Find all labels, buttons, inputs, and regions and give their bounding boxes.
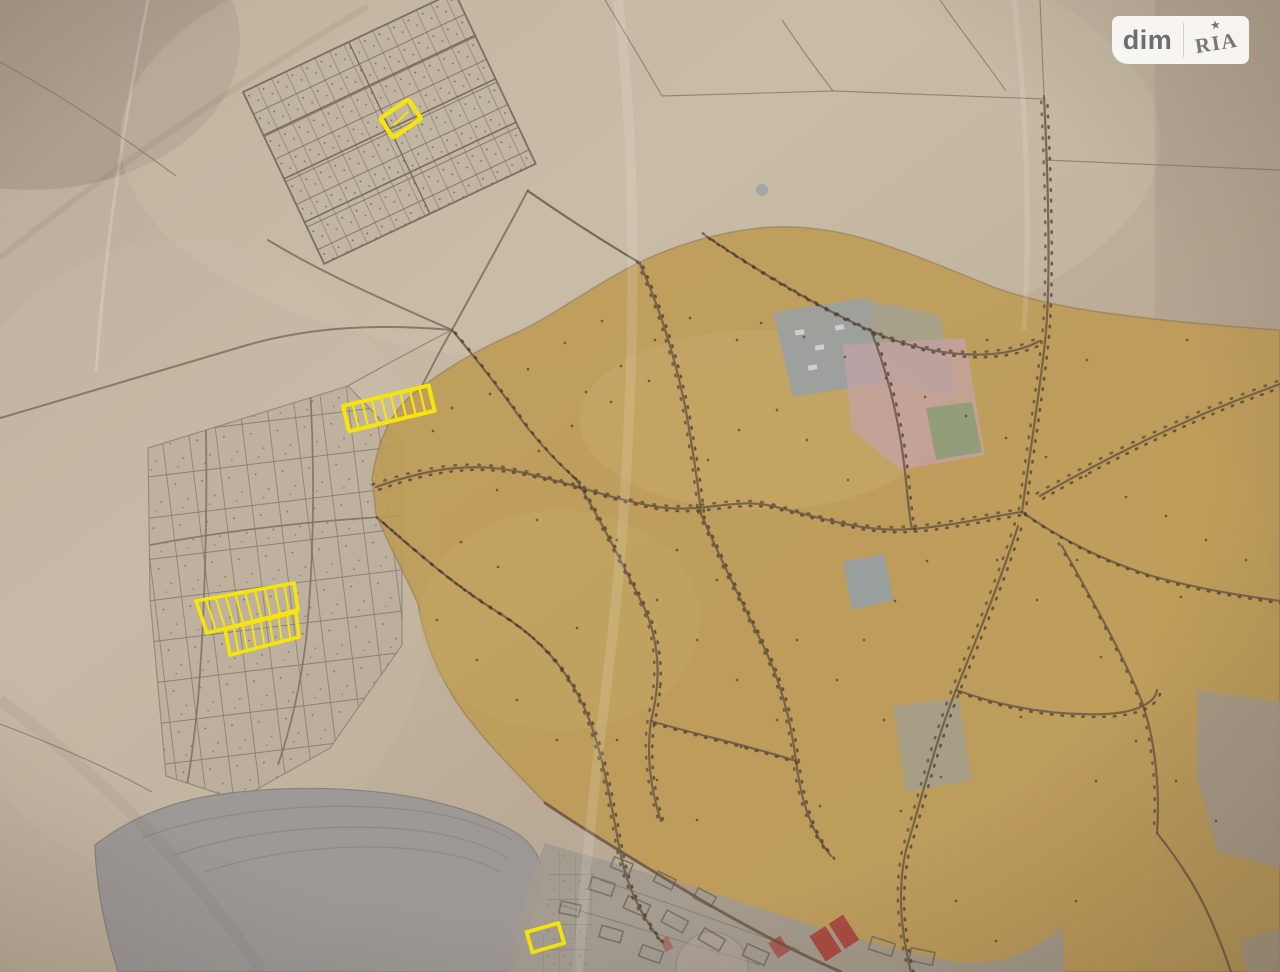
ria-logo-text: RIA xyxy=(1194,28,1240,59)
dimria-watermark: dim ★ RIA xyxy=(1112,16,1249,64)
dim-logo-text: dim xyxy=(1112,25,1183,56)
photo-vignette xyxy=(0,0,1280,972)
cadastral-map-photo xyxy=(0,0,1280,972)
screenshot: dim ★ RIA xyxy=(0,0,1280,972)
ria-logo-stamp: ★ RIA xyxy=(1184,16,1249,64)
